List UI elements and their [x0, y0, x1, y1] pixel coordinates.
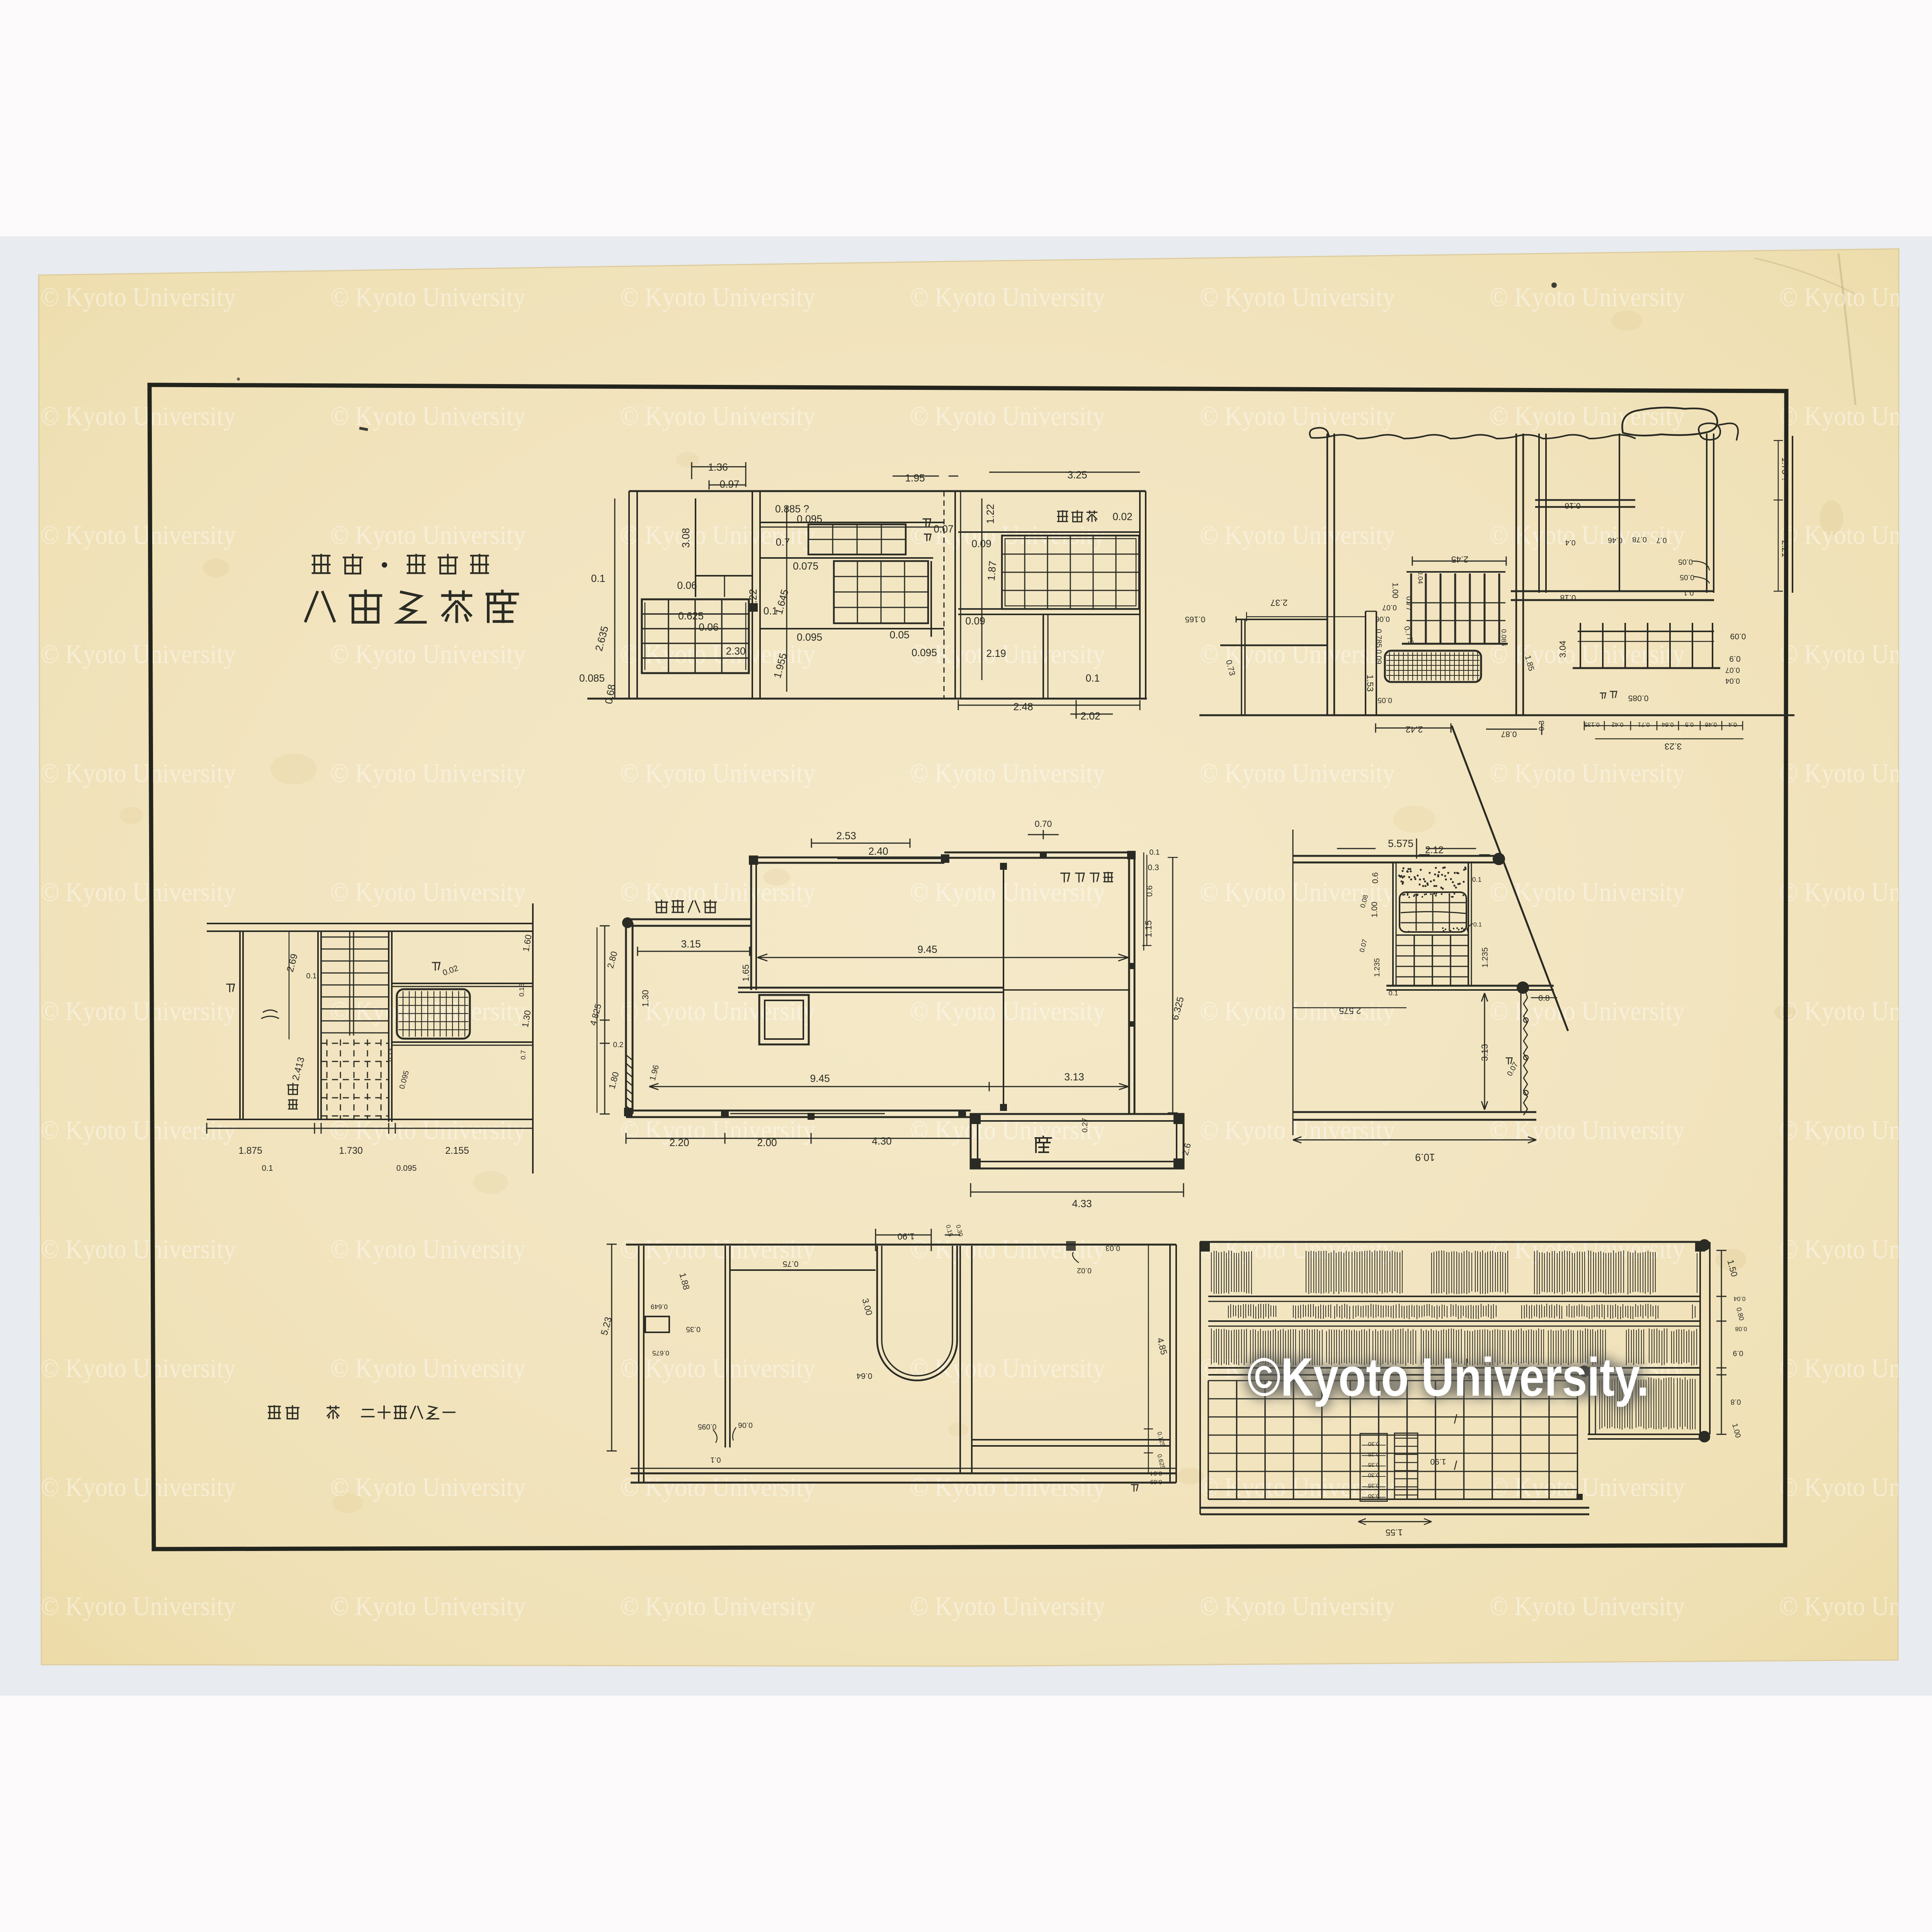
- svg-text:1.55: 1.55: [1386, 1527, 1403, 1537]
- svg-text:0.08: 0.08: [1735, 1325, 1747, 1332]
- svg-text:1.15: 1.15: [1143, 920, 1153, 938]
- svg-text:0.46: 0.46: [1608, 536, 1622, 544]
- svg-text:2.02: 2.02: [1080, 710, 1100, 722]
- svg-text:0.03: 0.03: [1105, 1244, 1120, 1252]
- svg-text:© Kyoto University: © Kyoto University: [910, 878, 1105, 907]
- svg-text:0.64: 0.64: [856, 1371, 872, 1380]
- svg-text:0.085: 0.085: [1500, 629, 1508, 646]
- svg-text:© Kyoto University: © Kyoto University: [330, 1592, 526, 1621]
- svg-text:0.04: 0.04: [1733, 1295, 1745, 1302]
- svg-text:0.1: 0.1: [711, 1456, 721, 1464]
- svg-text:© Kyoto University: © Kyoto University: [1200, 1473, 1395, 1502]
- svg-text:0.35: 0.35: [686, 1325, 701, 1333]
- svg-text:© Kyoto University: © Kyoto University: [620, 401, 815, 431]
- svg-text:© Kyoto University: © Kyoto University: [910, 639, 1105, 669]
- svg-text:0.27: 0.27: [1081, 1118, 1089, 1133]
- svg-text:0.085: 0.085: [579, 672, 605, 684]
- svg-text:0.1: 0.1: [1150, 848, 1160, 857]
- svg-text:© Kyoto University: © Kyoto University: [1200, 759, 1395, 788]
- svg-text:0.05: 0.05: [889, 629, 909, 641]
- svg-text:3.13: 3.13: [1064, 1071, 1084, 1083]
- svg-text:0.7: 0.7: [519, 1050, 527, 1060]
- svg-text:0.06: 0.06: [677, 580, 697, 591]
- svg-text:3.25: 3.25: [1067, 469, 1087, 481]
- svg-text:© Kyoto University: © Kyoto University: [910, 282, 1105, 312]
- svg-text:0.05: 0.05: [1680, 573, 1694, 582]
- svg-text:© Kyoto University: © Kyoto University: [330, 878, 526, 907]
- svg-text:0.5: 0.5: [1685, 721, 1694, 728]
- svg-text:2.53: 2.53: [836, 830, 856, 842]
- svg-text:© Kyoto University: © Kyoto University: [330, 759, 526, 788]
- svg-text:© Kyoto University: © Kyoto University: [1490, 401, 1685, 431]
- svg-text:0.095: 0.095: [797, 513, 822, 525]
- svg-text:© Kyoto University: © Kyoto University: [1490, 1592, 1685, 1621]
- svg-text:0.2: 0.2: [613, 1041, 624, 1049]
- svg-text:1.65: 1.65: [741, 964, 751, 982]
- svg-text:© Kyoto University: © Kyoto University: [910, 759, 1105, 788]
- svg-text:0.30: 0.30: [1368, 1493, 1379, 1499]
- svg-text:© Kyoto University: © Kyoto University: [41, 282, 236, 312]
- svg-text:10.9: 10.9: [1415, 1151, 1435, 1163]
- svg-text:5.575: 5.575: [1388, 838, 1413, 849]
- svg-text:0.46: 0.46: [1705, 721, 1717, 728]
- svg-text:0.4: 0.4: [1728, 721, 1737, 728]
- svg-text:0.18: 0.18: [1560, 593, 1576, 602]
- svg-text:© Kyoto University: © Kyoto University: [910, 401, 1105, 431]
- svg-text:2.155: 2.155: [445, 1146, 469, 1156]
- svg-text:© Kyoto University: © Kyoto University: [330, 520, 526, 550]
- svg-text:© Kyoto University: © Kyoto University: [41, 639, 236, 669]
- svg-text:© Kyoto University: © Kyoto University: [910, 1473, 1105, 1502]
- svg-text:© Kyoto University: © Kyoto University: [1200, 997, 1395, 1026]
- svg-text:0.625: 0.625: [678, 610, 704, 622]
- svg-text:3.15: 3.15: [681, 938, 701, 950]
- svg-text:© Kyoto University: © Kyoto University: [1200, 520, 1395, 550]
- svg-text:0.7: 0.7: [776, 536, 790, 548]
- svg-text:2.12: 2.12: [1425, 845, 1444, 855]
- svg-text:9.45: 9.45: [917, 944, 937, 955]
- svg-text:0.09: 0.09: [1150, 1478, 1162, 1485]
- svg-text:0.6: 0.6: [1371, 872, 1380, 883]
- svg-text:© Kyoto University: © Kyoto University: [620, 1473, 815, 1502]
- svg-text:0.09: 0.09: [1730, 632, 1746, 641]
- svg-text:© Kyoto University: © Kyoto University: [41, 878, 236, 907]
- svg-text:0.649: 0.649: [651, 1303, 668, 1311]
- svg-text:© Kyoto University: © Kyoto University: [330, 401, 526, 431]
- svg-text:2.40: 2.40: [868, 845, 888, 857]
- svg-text:© Kyoto University: © Kyoto University: [41, 1354, 236, 1383]
- svg-text:© Kyoto University: © Kyoto University: [620, 878, 815, 907]
- svg-text:1.90: 1.90: [898, 1231, 915, 1242]
- svg-text:0.06: 0.06: [738, 1421, 753, 1429]
- svg-text:1.90: 1.90: [1430, 1457, 1446, 1466]
- svg-text:0.8: 0.8: [1538, 994, 1549, 1003]
- svg-text:0.16: 0.16: [1565, 501, 1580, 510]
- svg-text:0.9: 0.9: [1733, 1349, 1743, 1357]
- svg-text:0.05: 0.05: [1378, 696, 1392, 704]
- svg-text:© Kyoto University: © Kyoto University: [41, 997, 236, 1026]
- svg-text:0.07: 0.07: [1725, 666, 1740, 674]
- svg-text:0.675: 0.675: [652, 1349, 669, 1357]
- svg-text:0.75: 0.75: [782, 1259, 798, 1268]
- svg-text:0.3: 0.3: [1537, 721, 1546, 731]
- svg-text:0.70: 0.70: [1035, 819, 1052, 829]
- svg-text:0.71: 0.71: [1638, 721, 1650, 728]
- svg-text:© Kyoto University: © Kyoto University: [41, 759, 236, 788]
- svg-text:© Kyoto University: © Kyoto University: [330, 1473, 526, 1502]
- svg-text:0.15: 0.15: [518, 983, 526, 997]
- svg-text:© Kyoto University: © Kyoto University: [1200, 401, 1395, 431]
- svg-text:4.33: 4.33: [1072, 1198, 1092, 1209]
- svg-text:0.9: 0.9: [1729, 654, 1740, 663]
- svg-text:© Kyoto University: © Kyoto University: [41, 1235, 236, 1264]
- svg-text:© Kyoto University: © Kyoto University: [41, 1473, 236, 1502]
- svg-text:0.87: 0.87: [1501, 730, 1517, 738]
- svg-text:© Kyoto University: © Kyoto University: [910, 1116, 1105, 1145]
- svg-text:© Kyoto University: © Kyoto University: [1200, 1592, 1395, 1621]
- svg-text:0.97: 0.97: [719, 478, 739, 490]
- svg-text:0.02: 0.02: [1077, 1266, 1092, 1275]
- svg-text:© Kyoto University: © Kyoto University: [1490, 639, 1685, 669]
- svg-text:0.13: 0.13: [386, 1048, 394, 1061]
- svg-text:0.1: 0.1: [306, 972, 317, 980]
- svg-text:0.075: 0.075: [793, 560, 818, 572]
- svg-text:© Kyoto University: © Kyoto University: [330, 1235, 526, 1264]
- svg-text:0.165: 0.165: [1185, 615, 1206, 624]
- svg-text:0.09: 0.09: [971, 538, 991, 549]
- svg-text:0.1: 0.1: [591, 573, 605, 584]
- svg-text:0.64: 0.64: [1662, 721, 1673, 728]
- svg-text:2.30: 2.30: [726, 645, 745, 657]
- svg-text:0.30: 0.30: [1368, 1440, 1379, 1447]
- svg-text:0.1: 0.1: [1086, 672, 1100, 684]
- svg-text:0.135: 0.135: [1584, 721, 1600, 728]
- svg-text:3.08: 3.08: [680, 528, 692, 548]
- svg-text:0.25: 0.25: [1368, 1451, 1379, 1458]
- svg-text:0.4: 0.4: [1565, 538, 1575, 547]
- svg-text:0.095: 0.095: [797, 631, 822, 643]
- svg-text:0.06: 0.06: [699, 621, 718, 633]
- svg-text:© Kyoto University: © Kyoto University: [1200, 282, 1395, 312]
- svg-text:2.20: 2.20: [669, 1137, 689, 1148]
- svg-text:1.95: 1.95: [905, 472, 925, 484]
- svg-text:© Kyoto University: © Kyoto University: [330, 1354, 526, 1383]
- svg-text:0.1: 0.1: [1684, 588, 1694, 597]
- svg-text:0.07: 0.07: [934, 523, 953, 535]
- svg-text:2.45: 2.45: [1451, 554, 1469, 565]
- svg-text:© Kyoto University: © Kyoto University: [620, 1116, 815, 1145]
- svg-text:9.45: 9.45: [810, 1073, 830, 1084]
- svg-text:0.095: 0.095: [912, 647, 937, 658]
- svg-text:©Kyoto University.: ©Kyoto University.: [1247, 1347, 1649, 1407]
- svg-text:0.35: 0.35: [1368, 1482, 1379, 1489]
- svg-text:0.04: 0.04: [1725, 677, 1740, 685]
- svg-text:0.07: 0.07: [1382, 603, 1397, 612]
- svg-text:0.1: 0.1: [262, 1164, 273, 1173]
- svg-text:0.05: 0.05: [1678, 558, 1693, 566]
- svg-text:1.73 ?: 1.73 ?: [1780, 457, 1790, 482]
- svg-text:© Kyoto University: © Kyoto University: [330, 282, 526, 312]
- svg-text:1.36: 1.36: [708, 461, 728, 473]
- svg-text:0.8: 0.8: [1731, 1398, 1741, 1406]
- svg-text:2.37: 2.37: [1270, 598, 1288, 608]
- svg-text:0.095: 0.095: [396, 1164, 417, 1173]
- svg-text:1.875: 1.875: [238, 1146, 262, 1156]
- svg-text:0.02: 0.02: [1112, 511, 1132, 522]
- svg-text:0.06: 0.06: [1375, 615, 1390, 623]
- svg-text:1.53: 1.53: [1365, 675, 1375, 692]
- svg-text:0.3: 0.3: [1148, 863, 1159, 872]
- svg-text:0.1: 0.1: [1389, 989, 1398, 997]
- svg-text:© Kyoto University: © Kyoto University: [1490, 1473, 1685, 1502]
- svg-text:1.30: 1.30: [640, 990, 650, 1007]
- svg-text:0.1: 0.1: [1473, 922, 1482, 928]
- svg-text:2.48: 2.48: [1013, 701, 1033, 713]
- svg-text:0.42: 0.42: [1612, 721, 1624, 728]
- svg-text:0.30: 0.30: [1368, 1472, 1379, 1478]
- svg-text:1.87: 1.87: [985, 560, 998, 581]
- svg-text:0.04: 0.04: [1150, 1470, 1162, 1476]
- svg-text:© Kyoto University: © Kyoto University: [1490, 997, 1685, 1026]
- svg-text:© Kyoto University: © Kyoto University: [1490, 282, 1685, 312]
- svg-text:0.09: 0.09: [1374, 650, 1383, 664]
- svg-text:0.1: 0.1: [1472, 876, 1481, 883]
- svg-text:0.78: 0.78: [1632, 535, 1647, 544]
- svg-text:1.00: 1.00: [1391, 582, 1400, 598]
- svg-text:3.13: 3.13: [1480, 1044, 1490, 1061]
- svg-text:© Kyoto University: © Kyoto University: [41, 520, 236, 550]
- svg-text:© Kyoto University: © Kyoto University: [1490, 520, 1685, 550]
- svg-text:1.00: 1.00: [1370, 901, 1379, 917]
- svg-text:1.235: 1.235: [1373, 958, 1381, 977]
- svg-text:0.22: 0.22: [747, 589, 759, 609]
- svg-text:© Kyoto University: © Kyoto University: [620, 282, 815, 312]
- svg-text:3.04: 3.04: [1558, 640, 1568, 658]
- svg-text:0.785: 0.785: [1374, 629, 1383, 648]
- svg-text:1.22: 1.22: [985, 504, 996, 524]
- svg-text:2.00: 2.00: [757, 1137, 777, 1148]
- svg-text:© Kyoto University: © Kyoto University: [620, 1354, 815, 1383]
- svg-text:© Kyoto University: © Kyoto University: [1490, 759, 1685, 788]
- svg-text:© Kyoto University: © Kyoto University: [41, 1592, 236, 1621]
- svg-text:2.42: 2.42: [1406, 724, 1423, 735]
- svg-text:0.1: 0.1: [764, 605, 778, 617]
- svg-text:© Kyoto University: © Kyoto University: [910, 1592, 1105, 1621]
- svg-text:1.235: 1.235: [1481, 947, 1490, 968]
- svg-text:© Kyoto University: © Kyoto University: [910, 997, 1105, 1026]
- svg-text:0.085: 0.085: [1628, 694, 1649, 702]
- svg-text:0.09: 0.09: [965, 615, 985, 627]
- svg-text:2.19: 2.19: [986, 648, 1006, 659]
- svg-text:2.21: 2.21: [1780, 540, 1790, 558]
- svg-text:1.730: 1.730: [339, 1146, 363, 1156]
- svg-text:0.77: 0.77: [1405, 596, 1413, 611]
- svg-text:0.04: 0.04: [1417, 571, 1424, 584]
- svg-text:0.095: 0.095: [698, 1422, 717, 1431]
- svg-text:© Kyoto University: © Kyoto University: [620, 759, 815, 788]
- svg-text:© Kyoto University: © Kyoto University: [41, 401, 236, 431]
- svg-text:4.30: 4.30: [872, 1135, 891, 1147]
- svg-text:0.35: 0.35: [1368, 1461, 1379, 1468]
- svg-text:3.23: 3.23: [1665, 742, 1682, 752]
- svg-text:© Kyoto University: © Kyoto University: [330, 639, 526, 669]
- svg-text:0.7: 0.7: [1656, 536, 1667, 544]
- svg-text:© Kyoto University: © Kyoto University: [620, 1592, 815, 1621]
- svg-text:0.6: 0.6: [1145, 885, 1154, 896]
